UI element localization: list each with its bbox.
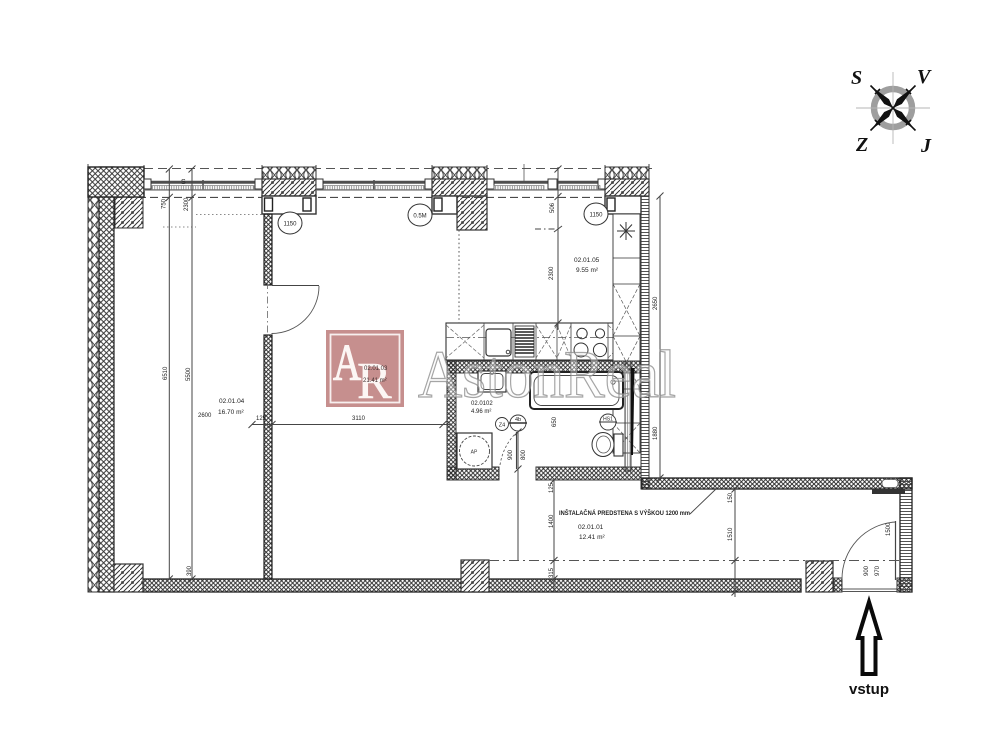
svg-text:16.70 m²: 16.70 m² [218, 409, 244, 416]
svg-text:3110: 3110 [352, 416, 366, 422]
svg-text:125: 125 [256, 416, 267, 422]
svg-text:390: 390 [187, 565, 193, 576]
svg-text:02.01.04: 02.01.04 [219, 398, 245, 405]
svg-text:INŠTALAČNÁ PREDSTENA S VÝŠKOU: INŠTALAČNÁ PREDSTENA S VÝŠKOU 1200 mm [559, 508, 690, 517]
svg-text:J: J [920, 135, 932, 157]
svg-text:1150: 1150 [590, 213, 604, 219]
svg-text:02.01.01: 02.01.01 [578, 524, 604, 531]
svg-text:650: 650 [552, 416, 558, 427]
svg-text:2650: 2650 [653, 296, 659, 310]
svg-text:S: S [181, 179, 186, 186]
svg-text:2300: 2300 [184, 197, 190, 211]
svg-text:V: V [917, 66, 932, 88]
svg-text:HS1: HS1 [603, 417, 613, 423]
svg-text:506: 506 [550, 202, 556, 213]
svg-text:2300: 2300 [549, 266, 555, 280]
svg-text:21.41 m²: 21.41 m² [363, 378, 387, 384]
svg-text:1150: 1150 [284, 222, 298, 228]
svg-text:6510: 6510 [163, 366, 169, 380]
svg-text:AP: AP [471, 450, 478, 456]
svg-text:900: 900 [508, 449, 514, 460]
svg-text:AstonReal: AstonReal [418, 336, 676, 412]
svg-text:150: 150 [728, 492, 734, 503]
svg-text:0.5M: 0.5M [413, 214, 426, 220]
svg-text:vstup: vstup [849, 681, 889, 698]
svg-text:12.41 m²: 12.41 m² [579, 534, 605, 541]
svg-text:750: 750 [162, 198, 168, 209]
svg-text:125: 125 [549, 482, 555, 493]
svg-text:Z: Z [855, 134, 868, 156]
svg-text:1400: 1400 [549, 514, 555, 528]
svg-text:4b: 4b [515, 417, 521, 423]
svg-text:1500: 1500 [886, 522, 892, 536]
svg-text:1510: 1510 [728, 527, 734, 541]
svg-text:2600: 2600 [198, 413, 212, 419]
svg-text:970: 970 [875, 565, 881, 576]
svg-text:900: 900 [864, 565, 870, 576]
svg-text:5500: 5500 [186, 367, 192, 381]
svg-text:9.55 m²: 9.55 m² [576, 267, 599, 274]
svg-text:1880: 1880 [653, 426, 659, 440]
svg-text:Z4: Z4 [499, 423, 505, 429]
svg-text:02.01.03: 02.01.03 [364, 366, 388, 372]
svg-text:315: 315 [549, 567, 555, 578]
svg-text:S: S [851, 67, 862, 89]
svg-text:800: 800 [521, 449, 527, 460]
svg-text:02.01.05: 02.01.05 [574, 257, 600, 264]
